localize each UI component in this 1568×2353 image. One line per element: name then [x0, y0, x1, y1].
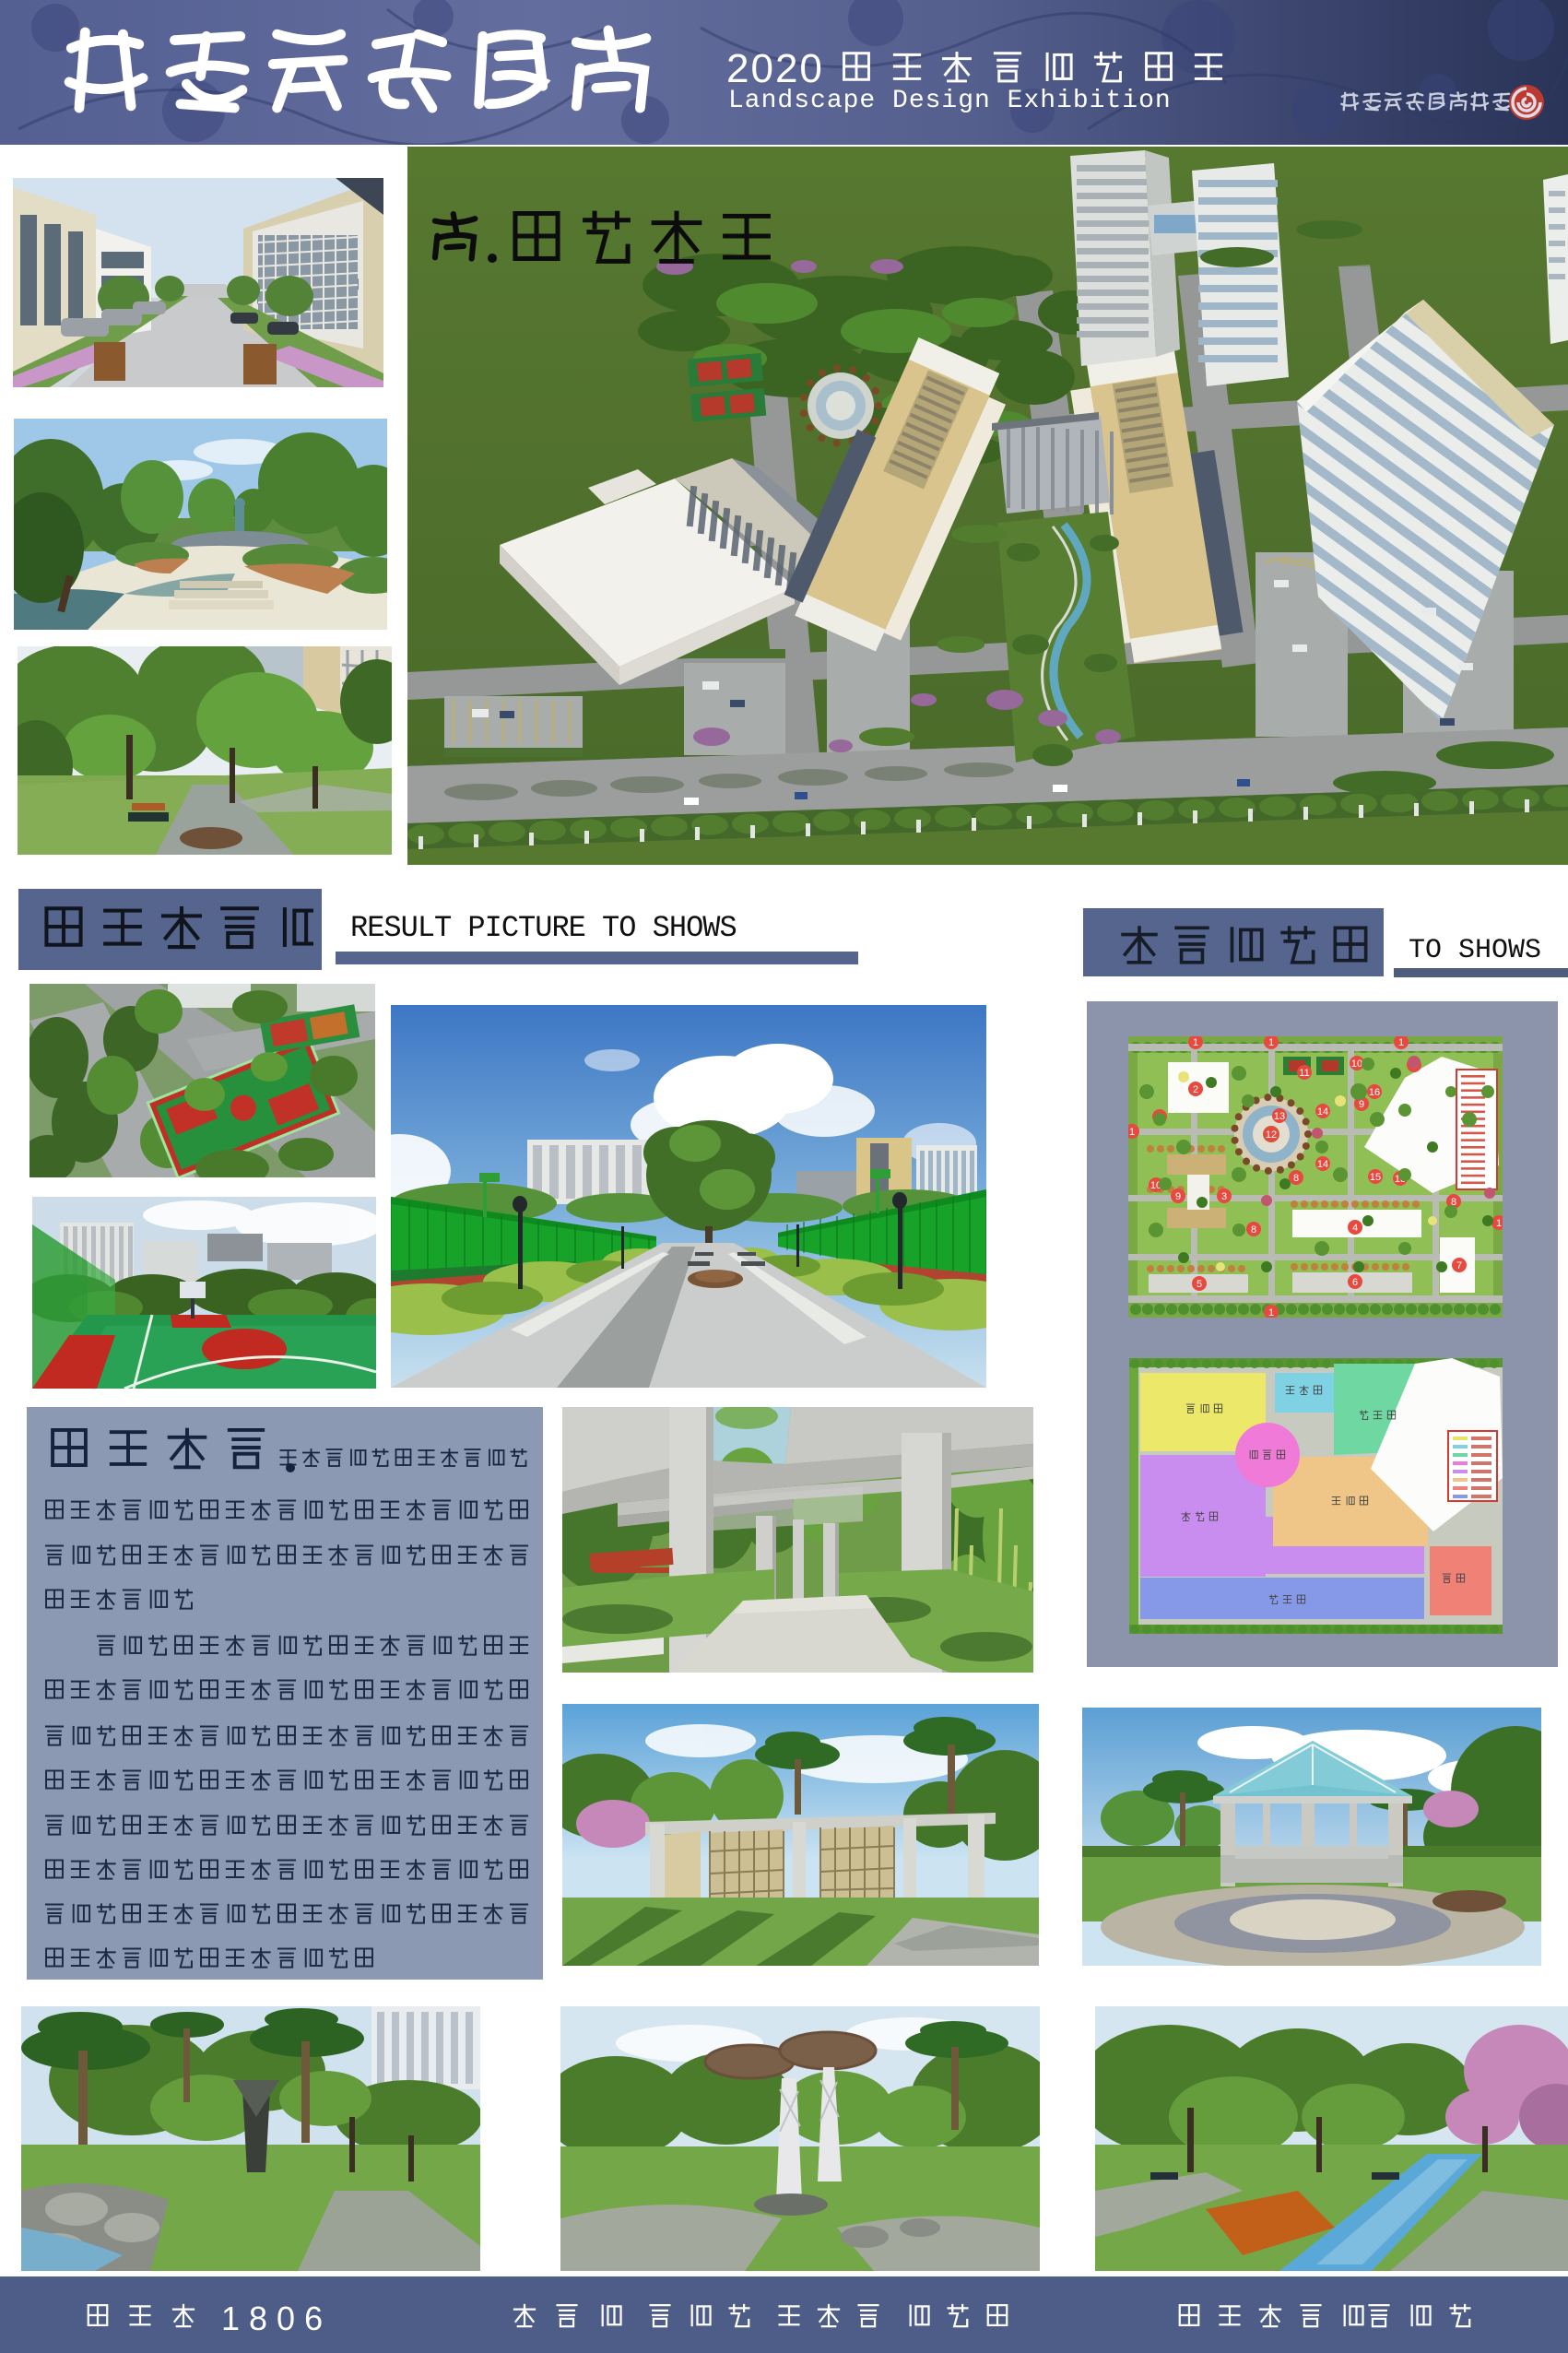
- svg-text:1: 1: [1496, 1218, 1502, 1229]
- svg-text:1: 1: [1398, 1037, 1404, 1048]
- svg-text:1: 1: [1268, 1037, 1274, 1048]
- svg-text:1: 1: [1129, 1127, 1135, 1138]
- svg-text:10: 10: [1351, 1058, 1362, 1070]
- svg-text:4: 4: [1352, 1223, 1358, 1234]
- svg-text:13: 13: [1274, 1111, 1285, 1122]
- svg-text:8: 8: [1293, 1173, 1299, 1184]
- svg-text:11: 11: [1299, 1068, 1309, 1079]
- svg-text:2: 2: [1193, 1084, 1198, 1095]
- svg-text:12: 12: [1266, 1129, 1277, 1141]
- svg-text:1: 1: [1268, 1307, 1274, 1318]
- svg-text:15: 15: [1370, 1172, 1381, 1183]
- svg-text:14: 14: [1317, 1106, 1328, 1117]
- svg-text:1: 1: [1193, 1037, 1198, 1048]
- svg-text:16: 16: [1369, 1087, 1380, 1098]
- svg-text:7: 7: [1456, 1260, 1462, 1271]
- svg-text:3: 3: [1221, 1191, 1227, 1202]
- svg-text:9: 9: [1175, 1191, 1181, 1202]
- svg-text:5: 5: [1197, 1279, 1202, 1290]
- svg-text:6: 6: [1352, 1277, 1358, 1288]
- svg-text:8: 8: [1251, 1224, 1256, 1236]
- svg-text:14: 14: [1317, 1159, 1328, 1170]
- svg-text:1806: 1806: [221, 2300, 332, 2337]
- svg-text:9: 9: [1359, 1099, 1364, 1110]
